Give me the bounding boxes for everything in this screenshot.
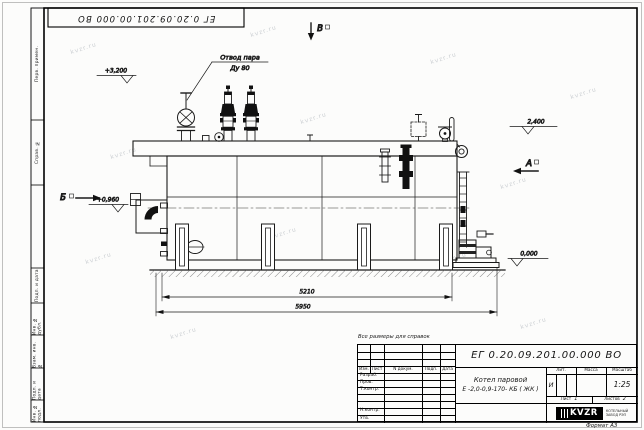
outlet-elbow-flange: [215, 133, 224, 142]
boiler-side-view: 5210 5950 +3,200 2,400: [60, 23, 557, 316]
product-name-line1: Котел паровой: [474, 377, 527, 384]
svg-text:В: В: [317, 24, 323, 34]
elevation-3200: +3,200: [97, 68, 136, 84]
lit-label: Лит.: [546, 367, 576, 374]
sheets-cell: Листов 2: [592, 396, 638, 403]
dimension-5210: 5210: [162, 273, 452, 301]
logo-stripes-icon: [561, 409, 568, 418]
company-logo-cell: KVZR КОТЕЛЬНЫЙ ЗАВОД РЭП: [546, 403, 638, 423]
safety-valve-2: [243, 86, 259, 142]
view-arrow-a: А: [513, 159, 539, 174]
row-prov: Пров.: [358, 380, 384, 387]
logo-text: KVZR: [570, 408, 598, 418]
drum-nozzle-stub: [203, 136, 210, 142]
level-gauge-right: [399, 145, 413, 190]
lit-value: И: [546, 374, 556, 396]
svg-text:Ду 80: Ду 80: [229, 64, 249, 72]
top-stamp: ЕГ 0.20.09.201.00.000 ВО: [48, 8, 244, 27]
margin-field-inv-podl: Инв. № подл.: [31, 400, 44, 422]
sheet-value: 1: [574, 397, 577, 402]
format-label: Формат А3: [586, 423, 617, 429]
scale-label: Масштаб: [606, 367, 638, 374]
svg-text:Отвод пара: Отвод пара: [220, 54, 260, 62]
steam-outlet-valve: [178, 93, 195, 141]
margin-field-podp-data-1: Подп. и дата: [31, 268, 44, 303]
view-arrow-v: В: [308, 23, 330, 41]
col-header-data: Дата: [440, 366, 455, 373]
elevation-2400: 2,400: [510, 119, 557, 135]
col-header-izm: Изм.: [358, 366, 370, 373]
product-name: Котел паровой Е -2,0-0,9-170- КБ ( ЖК ): [455, 367, 546, 403]
col-header-ndoc: N докум.: [384, 366, 422, 373]
svg-text:Б: Б: [60, 193, 66, 203]
kvzr-logo: KVZR: [556, 407, 603, 420]
drawing-sheet: kvzr.ru kvzr.ru kvzr.ru kvzr.ru kvzr.ru …: [0, 0, 644, 430]
logo-caption-line2: ЗАВОД РЭП: [606, 413, 628, 417]
reference-note: Все размеры для справок: [358, 334, 430, 340]
row-tkontr: Т.контр.: [358, 387, 384, 394]
burner: [136, 200, 168, 256]
hidden-fitting-box: [411, 115, 426, 142]
svg-text:А: А: [525, 159, 532, 169]
svg-text:+0,960: +0,960: [97, 197, 119, 204]
svg-text:2,400: 2,400: [527, 119, 544, 126]
row-nkontr: Н.контр.: [358, 408, 384, 415]
support-legs: [176, 224, 453, 270]
margin-field-podp-data-2: Подп. и дата: [31, 368, 44, 400]
safety-valve-1: [220, 86, 236, 142]
thermometer-pocket: [450, 118, 455, 142]
logo-caption: КОТЕЛЬНЫЙ ЗАВОД РЭП: [606, 409, 628, 417]
top-stamp-text: ЕГ 0.20.09.201.00.000 ВО: [77, 13, 215, 23]
view-arrow-b: Б: [60, 193, 101, 203]
col-header-podp: Подп.: [422, 366, 440, 373]
dim-5950-label: 5950: [295, 304, 310, 311]
row-utv: Утв.: [358, 415, 384, 423]
scale-value: 1:25: [606, 374, 638, 396]
level-gauge-left: [380, 149, 391, 182]
margin-field-vzam-inv: Взам. инв. №: [31, 335, 44, 368]
sheet-cell: Лист 1: [546, 396, 592, 403]
elevation-0000: 0,000: [508, 251, 548, 267]
row-razrab: Разраб.: [358, 373, 384, 380]
dim-5210-label: 5210: [299, 289, 314, 296]
col-header-list: Лист: [370, 366, 384, 373]
doc-number: ЕГ 0.20.09.201.00.000 ВО: [455, 345, 638, 367]
svg-text:+3,200: +3,200: [105, 68, 127, 75]
title-block: Изм. Лист N докум. Подп. Дата Разраб. Пр…: [357, 344, 637, 422]
sheets-value: 2: [623, 397, 626, 402]
margin-field-inv-dubl: Инв. № дубл.: [31, 303, 44, 335]
svg-text:0,000: 0,000: [520, 251, 537, 258]
gauge-column: [457, 172, 469, 247]
product-name-line2: Е -2,0-0,9-170- КБ ( ЖК ): [462, 387, 538, 393]
margin-field-perv-primen: Перв. примен.: [31, 8, 44, 120]
sheet-label: Лист: [561, 397, 572, 401]
margin-field-sprav: Справ. №: [31, 120, 44, 185]
mass-label: Масса: [576, 367, 606, 374]
sheets-label: Листов: [604, 397, 620, 401]
